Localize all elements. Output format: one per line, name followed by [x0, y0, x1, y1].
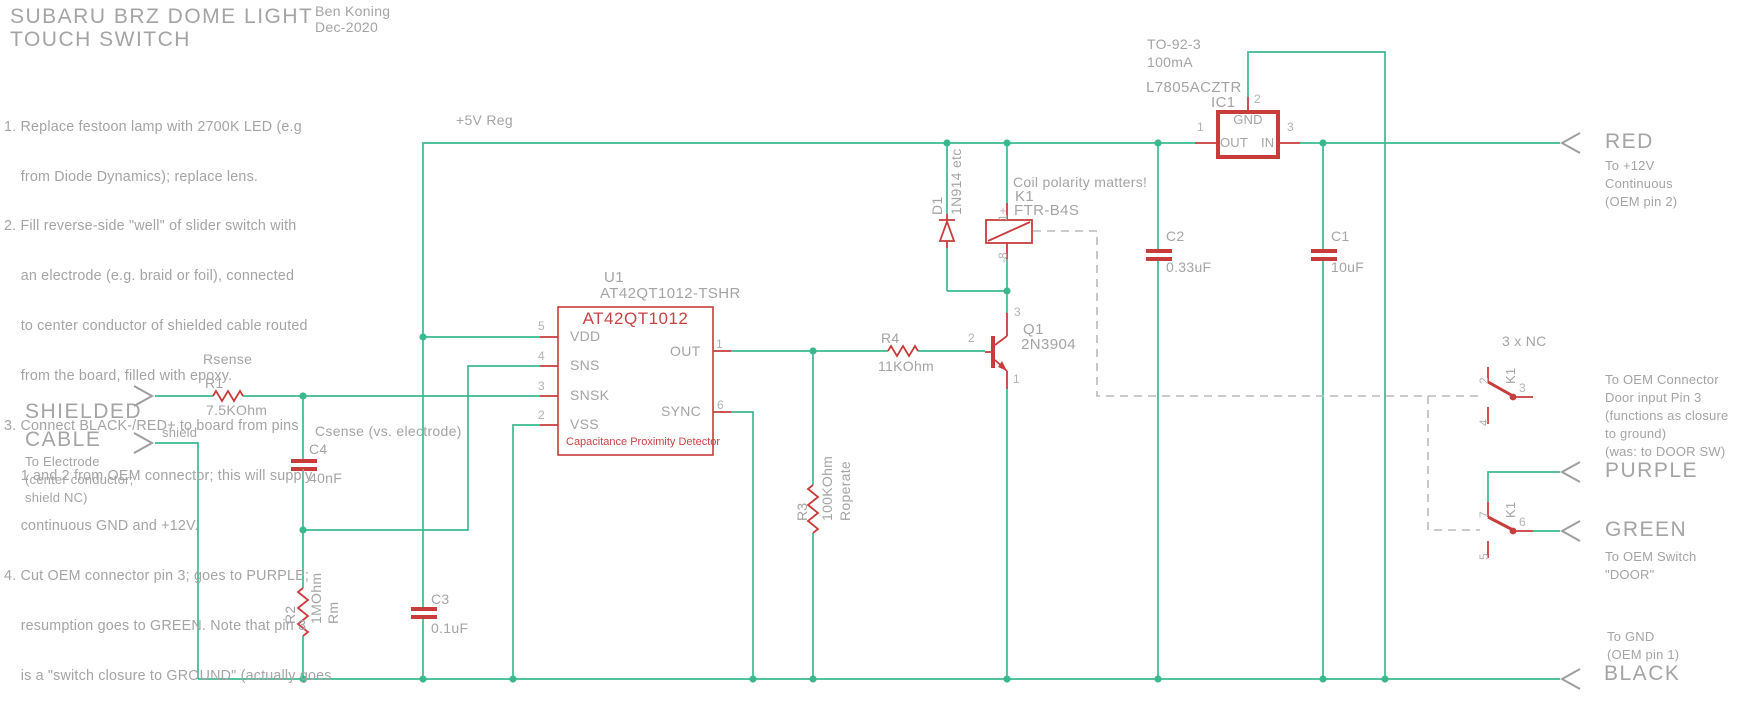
k1-c1-pin-bottom: 4 [1478, 419, 1491, 426]
ic1-rating: 100mA [1147, 55, 1193, 70]
u1-pin-sns: SNS [570, 358, 600, 373]
q1-pin-e: 1 [1013, 373, 1020, 386]
red-desc: To +12V [1605, 159, 1654, 173]
r1-name: Rsense [203, 352, 252, 367]
r1-ref: R1 [205, 376, 224, 391]
net-label-red: RED [1605, 131, 1654, 153]
q1-pin-c: 3 [1014, 306, 1021, 319]
ic1-ref: IC1 [1211, 95, 1236, 111]
u1-pin-number: 2 [538, 409, 545, 422]
wire-sns-branch [303, 366, 540, 530]
r2-ref: R2 [283, 606, 298, 625]
k1-coil-pin-top: 1+ [997, 207, 1010, 221]
ic1-pin-gnd: GND [1218, 113, 1278, 127]
d1-diode [939, 214, 955, 248]
c4-ref: C4 [309, 442, 328, 457]
green-desc: To OEM Switch [1605, 550, 1696, 564]
u1-pin-number: 6 [717, 399, 724, 412]
u1-pin-snsk: SNSK [570, 388, 609, 403]
wire-sync-gnd [731, 412, 753, 679]
schematic-canvas: SUBARU BRZ DOME LIGHT TOUCH SWITCH Ben K… [0, 0, 1750, 701]
red-desc: Continuous [1605, 177, 1673, 191]
wires [155, 52, 1560, 679]
wire-vss-gnd [513, 425, 540, 679]
r3-ref: R3 [795, 503, 810, 522]
ic1-pin-in: IN [1261, 136, 1274, 150]
net-label-green: GREEN [1605, 519, 1687, 541]
u1-pin-stubs [540, 337, 731, 425]
page-title-line2: TOUCH SWITCH [10, 29, 191, 51]
u1-pin-sync: SYNC [661, 404, 701, 419]
u1-ref: U1 [604, 270, 624, 286]
c4-value: 40nF [309, 471, 342, 486]
ic1-pin-number: 1 [1197, 121, 1204, 134]
k1-c2-pin-right: 6 [1519, 516, 1526, 529]
note-line: 4. Cut OEM connector pin 3; goes to PURP… [4, 569, 332, 585]
cable-desc: (center conductor; [25, 473, 133, 487]
c1-ref: C1 [1331, 229, 1350, 244]
ic1-package: TO-92-3 [1147, 37, 1201, 52]
c1-value: 10uF [1331, 260, 1364, 275]
component-symbols [213, 97, 1533, 636]
u1-pin-vss: VSS [570, 417, 599, 432]
r4-value: 11KOhm [878, 359, 934, 374]
k1-part: FTR-B4S [1014, 203, 1079, 219]
cable-title-line2: CABLE [25, 429, 101, 451]
c2-ref: C2 [1166, 229, 1185, 244]
black-desc: (OEM pin 1) [1607, 648, 1679, 662]
oem-note: to ground) [1605, 427, 1666, 441]
c3-ref: C3 [431, 592, 450, 607]
net-label-5v: +5V Reg [456, 113, 513, 128]
wire-purple [1488, 472, 1560, 502]
note-line: from the board, filled with epoxy. [4, 369, 332, 385]
black-connector-icon [1562, 669, 1580, 689]
author-name: Ben Koning [315, 4, 390, 19]
oem-note: Door input Pin 3 [1605, 391, 1701, 405]
net-label-black: BLACK [1604, 663, 1680, 685]
note-line: 1. Replace festoon lamp with 2700K LED (… [4, 120, 332, 136]
u1-pin-vdd: VDD [570, 329, 600, 344]
purple-connector-icon [1562, 462, 1580, 482]
d1-ref: D1 [930, 197, 945, 216]
note-line: an electrode (e.g. braid or foil), conne… [4, 269, 332, 285]
d1-value: 1N914 etc [949, 148, 964, 215]
u1-pin-number: 4 [538, 350, 545, 363]
junction-dots [299, 139, 1388, 682]
u1-box-title: AT42QT1012 [558, 310, 713, 328]
c2-value: 0.33uF [1166, 260, 1211, 275]
k1-contacts-note: 3 x NC [1502, 334, 1547, 349]
oem-note: (was: to DOOR SW) [1605, 445, 1725, 459]
c3-capacitor [411, 607, 437, 619]
k1-c1-pin-right: 3 [1519, 382, 1526, 395]
q1-transistor [985, 313, 1007, 389]
green-connector-icon [1562, 521, 1580, 541]
note-line: is a "switch closure to GROUND" (actuall… [4, 669, 332, 685]
ic1-pin-out: OUT [1220, 136, 1248, 150]
cable-connectors [134, 133, 1580, 689]
ic1-pin-number: 3 [1287, 121, 1294, 134]
oem-note: To OEM Connector [1605, 373, 1719, 387]
oem-note: (functions as closure [1605, 409, 1728, 423]
relay-linkage-dashed [1033, 231, 1480, 530]
red-desc: (OEM pin 2) [1605, 195, 1677, 209]
k1-c2-pin-bottom: 5 [1478, 553, 1491, 560]
shield-label: shield [162, 426, 197, 440]
k1-c1-ref: K1 [1504, 368, 1518, 384]
note-line: to center conductor of shielded cable ro… [4, 319, 332, 335]
r2-name: Rm [326, 602, 341, 624]
r4-ref: R4 [881, 331, 900, 346]
cable-title-line1: SHIELDED [25, 401, 142, 423]
u1-part: AT42QT1012-TSHR [600, 286, 741, 302]
net-label-purple: PURPLE [1605, 460, 1698, 482]
r3-name: Roperate [838, 461, 853, 521]
note-line: from Diode Dynamics); replace lens. [4, 170, 332, 186]
u1-pin-number: 5 [538, 320, 545, 333]
k1-c2-ref: K1 [1504, 502, 1518, 518]
cable-desc: shield NC) [25, 491, 88, 505]
q1-pin-b: 2 [968, 332, 975, 345]
u1-pin-number: 1 [716, 338, 723, 351]
red-connector-icon [1562, 133, 1580, 153]
note-line: 2. Fill reverse-side "well" of slider sw… [4, 219, 332, 235]
k1-c1-pin-top: 2 [1478, 377, 1491, 384]
q1-value: 2N3904 [1021, 337, 1076, 353]
c3-value: 0.1uF [431, 621, 468, 636]
u1-subtitle: Capacitance Proximity Detector [566, 437, 720, 449]
r2-value: 1MOhm [309, 573, 324, 624]
ic1-pin-number: 2 [1254, 93, 1261, 106]
green-desc: "DOOR" [1605, 568, 1654, 582]
r1-value: 7.5KOhm [206, 403, 267, 418]
cable-desc: To Electrode [25, 455, 100, 469]
u1-pin-number: 3 [538, 380, 545, 393]
black-desc: To GND [1607, 630, 1654, 644]
r3-value: 100KOhm [820, 456, 835, 521]
note-line: continuous GND and +12V. [4, 519, 332, 535]
r4-resistor [888, 346, 918, 356]
page-title-line1: SUBARU BRZ DOME LIGHT [10, 6, 313, 28]
k1-c2-pin-top: 7 [1478, 511, 1491, 518]
author-date: Dec-2020 [315, 20, 378, 35]
u1-pin-out: OUT [670, 344, 700, 359]
c4-name: Csense (vs. electrode) [315, 424, 462, 439]
k1-coil-pin-bottom: -8 [997, 252, 1010, 263]
